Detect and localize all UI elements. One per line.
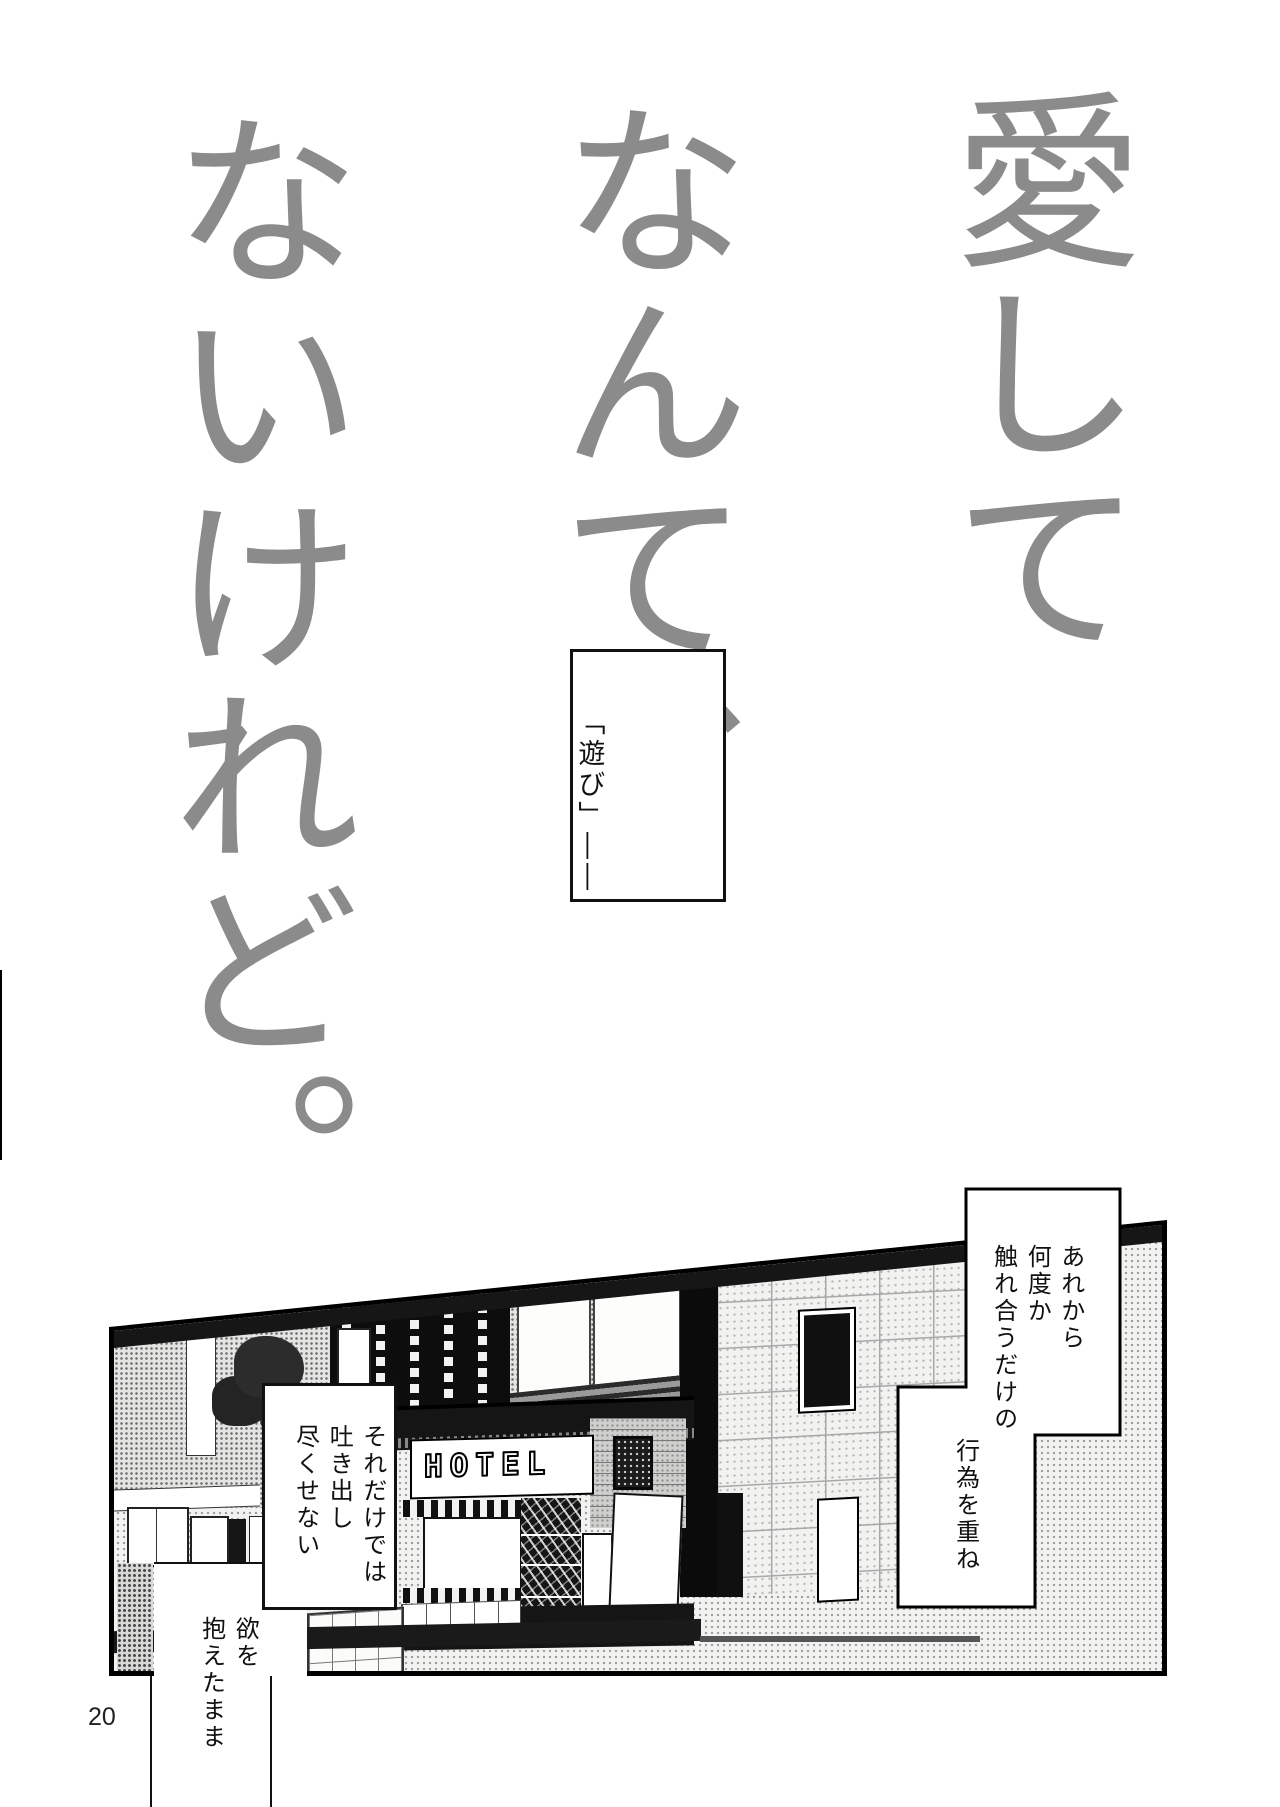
title-column-1: 愛して (936, 84, 1126, 660)
picture-frame (613, 1436, 653, 1490)
curb-line (700, 1636, 980, 1642)
menu-board (423, 1517, 522, 1592)
narration-line: それだけでは (355, 1424, 389, 1586)
tilted-signboard (609, 1493, 684, 1612)
chain-icon (478, 1256, 487, 1428)
narration-arekara-text: あれから 何度か 触れ合うだけの (986, 1244, 1087, 1433)
shop-sign (127, 1507, 189, 1567)
narration-line: 抱えたまま (194, 1616, 228, 1751)
narration-line: 何度か (1020, 1244, 1054, 1433)
small-signboard (337, 1328, 371, 1386)
caption-box-asobi: 「遊び」―― (570, 649, 726, 902)
hotel-sign-text: HOTEL (412, 1437, 592, 1494)
narration-koui-text: 行為を重ね (948, 1438, 982, 1573)
title-column-3: ないけれど。 (154, 104, 344, 1256)
shop-sign (190, 1516, 229, 1567)
narration-line: 吐き出し (322, 1424, 356, 1586)
sign-divider (156, 1509, 157, 1565)
shelf-line (521, 1596, 581, 1598)
narration-line: 尽くせない (288, 1424, 322, 1586)
palm-plants (521, 1498, 581, 1623)
narration-line: 欲を (228, 1616, 262, 1751)
page-number: 20 (88, 1703, 116, 1732)
print-artifact-line (0, 970, 2, 1160)
manga-page: 愛して なんて、 ないけれど。 「遊び」―― (0, 0, 1280, 1807)
hotel-sign: HOTEL (410, 1435, 594, 1500)
narration-line: あれから (1053, 1244, 1087, 1433)
narration-yoku-text: 欲を 抱えたまま (194, 1616, 261, 1751)
white-window (817, 1497, 859, 1603)
dark-window (800, 1309, 854, 1412)
narration-line: 触れ合うだけの (986, 1244, 1020, 1433)
caption-asobi-text: 「遊び」―― (573, 652, 664, 894)
vertical-sign-blank (186, 1332, 216, 1456)
chain-icon (444, 1256, 453, 1428)
dark-post (229, 1519, 246, 1563)
halftone-column (117, 1563, 153, 1672)
shelf-line (521, 1534, 581, 1536)
doorway-strip (717, 1493, 743, 1597)
chain-icon (410, 1256, 419, 1428)
shelf-line (521, 1564, 581, 1566)
narration-soredake-text: それだけでは 吐き出し 尽くせない (288, 1424, 389, 1586)
